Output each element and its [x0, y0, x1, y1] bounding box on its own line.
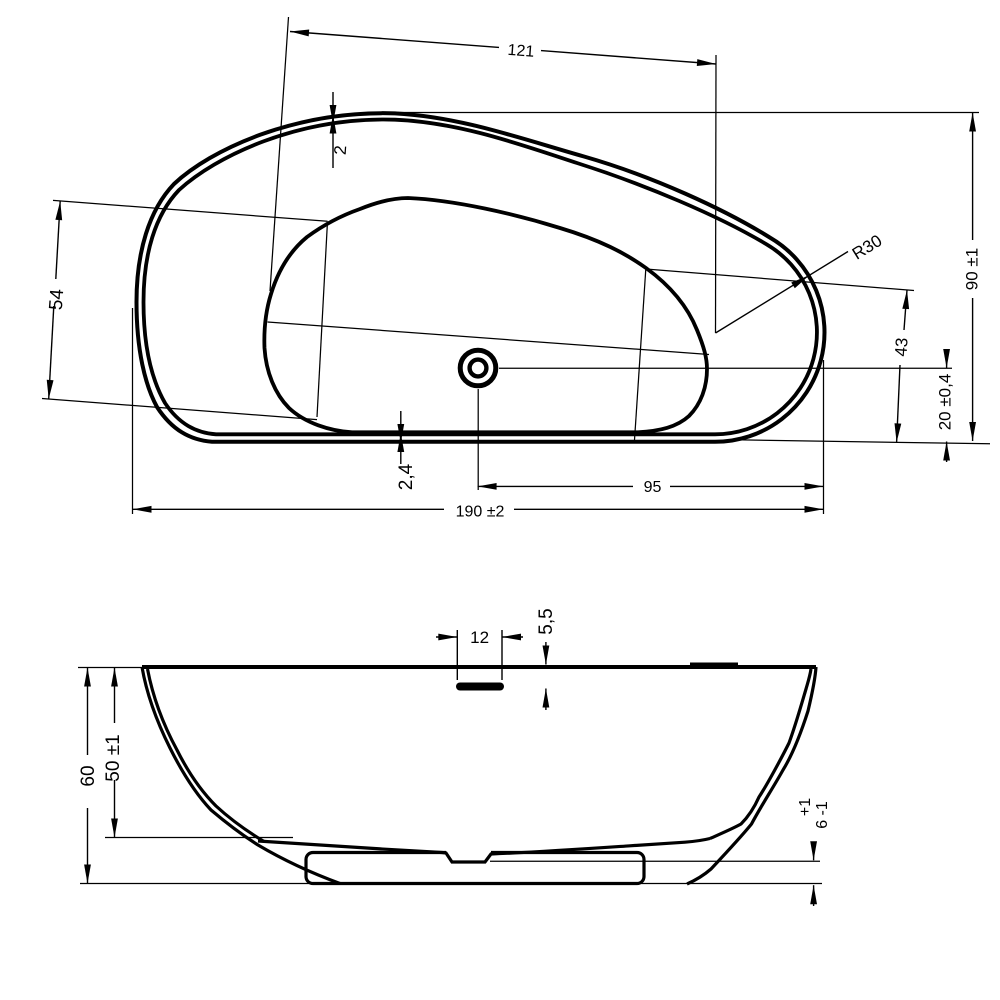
svg-text:+1: +1	[797, 798, 814, 816]
svg-text:95: 95	[644, 479, 662, 496]
svg-text:6 -1: 6 -1	[814, 801, 831, 829]
svg-text:50 ±1: 50 ±1	[103, 734, 124, 781]
svg-text:12: 12	[470, 628, 489, 647]
svg-text:2,4: 2,4	[396, 463, 417, 490]
svg-text:5,5: 5,5	[536, 608, 557, 634]
svg-text:43: 43	[891, 337, 911, 357]
svg-text:60: 60	[78, 765, 99, 786]
svg-text:90 ±1: 90 ±1	[963, 248, 982, 290]
svg-text:121: 121	[507, 42, 535, 61]
svg-text:2: 2	[331, 145, 351, 156]
svg-text:54: 54	[46, 288, 69, 311]
svg-text:190 ±2: 190 ±2	[456, 504, 505, 521]
svg-text:20 ±0,4: 20 ±0,4	[936, 374, 955, 431]
